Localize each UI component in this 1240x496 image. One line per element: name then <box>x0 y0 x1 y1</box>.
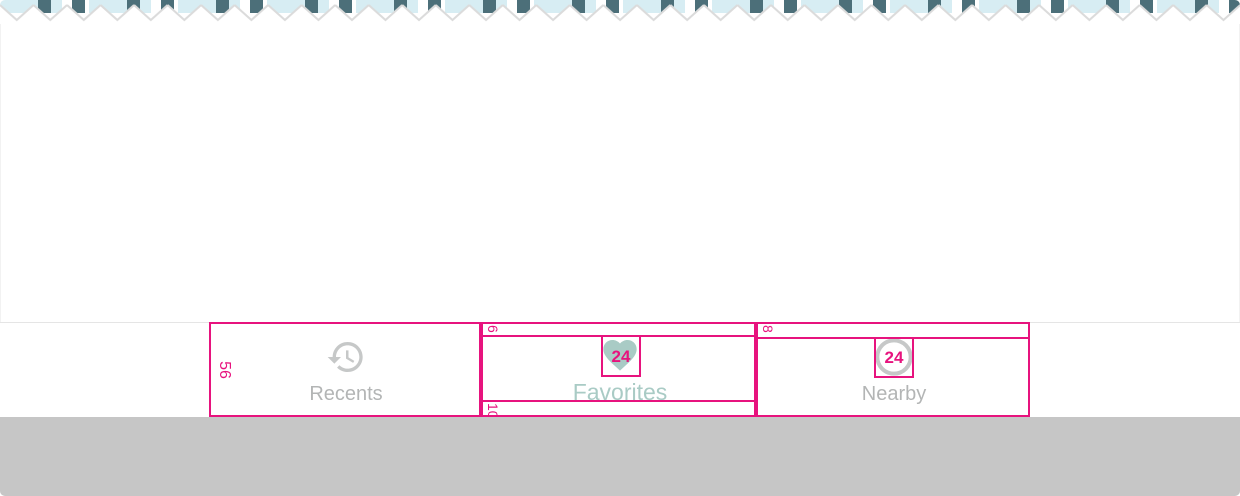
heart-icon <box>600 335 640 375</box>
history-icon <box>326 337 366 377</box>
tab-recents[interactable]: Recents <box>209 323 483 417</box>
tab-recents-label: Recents <box>309 382 382 406</box>
bottom-navigation-bar: Recents Favorites Nearby <box>0 322 1240 417</box>
tab-favorites[interactable]: Favorites <box>483 323 757 417</box>
zigzag-pattern-icon <box>0 0 1240 24</box>
tab-nearby[interactable]: Nearby <box>757 323 1031 417</box>
android-system-navbar <box>0 417 1240 496</box>
tab-favorites-label: Favorites <box>573 379 668 405</box>
circle-icon <box>874 337 914 377</box>
tab-nearby-label: Nearby <box>862 382 926 406</box>
app-screenshot-frame: Recents Favorites Nearby 56 6 <box>0 0 1240 496</box>
torn-paper-edge <box>0 0 1240 24</box>
